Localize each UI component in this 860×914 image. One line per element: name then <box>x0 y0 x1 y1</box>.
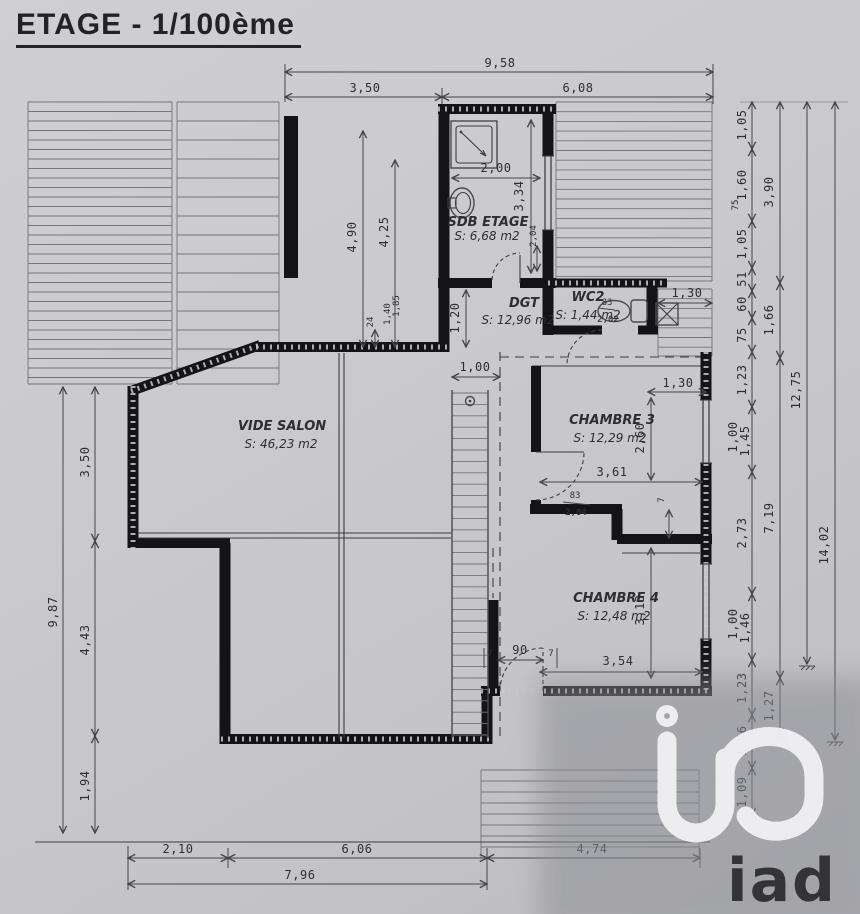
sink <box>448 188 474 218</box>
room-sdb-name: SDB ETAGE <box>448 215 529 230</box>
dim-left-1: 3,50 <box>78 447 92 478</box>
room-salon-area: S: 46,23 m2 <box>245 437 318 451</box>
dim-ch4-door-7b: 7 <box>548 649 553 659</box>
svg-text:83: 83 <box>570 491 581 501</box>
staircase <box>452 390 488 738</box>
dim-r2-0: 3,90 <box>762 177 776 208</box>
chambre4-window <box>700 564 712 639</box>
room-salon-name: VIDE SALON <box>238 419 326 434</box>
dim-r1-1: 1,60 <box>735 170 749 201</box>
dim-ch3-width: 3,61 <box>597 465 628 479</box>
room-dgt-area: S: 12,96 m2 <box>482 313 555 327</box>
dim-r1-0: 1,05 <box>735 110 749 141</box>
dim-r1-2: 75 <box>731 200 741 211</box>
dim-ch4-width: 3,54 <box>603 654 634 668</box>
room-wc2-name: WC2 <box>572 290 605 305</box>
dim-r4: 14,02 <box>817 526 831 565</box>
floor-plan-drawing: 9,58 3,50 6,08 9,87 3,50 4,43 1,94 2,10 … <box>0 0 860 914</box>
dim-top-left: 3,50 <box>350 81 381 95</box>
room-wc2-area: S: 1,44 m2 <box>555 308 620 322</box>
dim-t7: 7 <box>657 497 667 502</box>
room-chambre4-area: S: 12,48 m2 <box>578 609 651 623</box>
room-sdb-area: S: 6,68 m2 <box>454 229 519 243</box>
roof-ridge-bar <box>284 116 298 278</box>
room-dgt-name: DGT <box>509 296 540 311</box>
dim-r2-1: 1,66 <box>762 305 776 336</box>
dim-sdb-door: 2,04 <box>529 225 539 247</box>
dim-ch4-door-7a: 7 <box>487 649 492 659</box>
dim-left-2: 4,43 <box>78 625 92 656</box>
dim-r1-5: 60 <box>735 296 749 311</box>
dim-top-right: 6,08 <box>563 81 594 95</box>
dim-sdb-height: 3,34 <box>512 181 526 212</box>
sdb-window <box>542 156 554 230</box>
dim-dgt-120: 1,20 <box>448 303 462 334</box>
dim-r2-2: 7,19 <box>762 503 776 534</box>
wc2-window <box>656 303 678 325</box>
svg-text:2,04: 2,04 <box>565 508 587 518</box>
dim-stair-100: 1,00 <box>460 360 491 374</box>
sdb-door <box>492 253 520 283</box>
dim-r3: 12,75 <box>789 371 803 410</box>
scanned-floor-plan-page: ETAGE - 1/100ème <box>0 0 860 914</box>
dim-h-185: 1,85 <box>392 295 402 317</box>
dim-r1-7: 1,23 <box>735 365 749 396</box>
dim-bottom-total: 7,96 <box>285 868 316 882</box>
room-chambre3-area: S: 12,29 m2 <box>574 431 647 445</box>
dim-r1-4: 51 <box>735 271 749 286</box>
room-chambre3-name: CHAMBRE 3 <box>569 413 655 428</box>
dim-sdb-width: 2,00 <box>481 161 512 175</box>
dim-top-total: 9,58 <box>485 56 516 70</box>
dim-r1-9: 1,45 <box>738 426 752 457</box>
dim-left-3: 1,94 <box>78 771 92 802</box>
wc2-door <box>567 330 602 364</box>
dim-r1-3: 1,05 <box>735 229 749 260</box>
dim-bottom-1: 2,10 <box>163 842 194 856</box>
dim-ch4-door: 90 <box>512 643 527 657</box>
dim-wall-24: 24 <box>366 317 376 328</box>
dim-wc-window: 1,30 <box>672 286 703 300</box>
iad-wordmark: iad <box>727 846 837 914</box>
room-chambre4-name: CHAMBRE 4 <box>573 591 659 606</box>
dim-r1-12: 1,46 <box>738 613 752 644</box>
dim-r1-10: 2,73 <box>735 518 749 549</box>
dim-roof-2: 4,25 <box>377 217 391 248</box>
dim-r1-6: 75 <box>735 327 749 342</box>
dim-ch3-window: 1,30 <box>663 376 694 390</box>
dim-roof-1: 4,90 <box>345 222 359 253</box>
dim-bottom-2: 6,06 <box>342 842 373 856</box>
dim-left-total: 9,87 <box>46 597 60 628</box>
